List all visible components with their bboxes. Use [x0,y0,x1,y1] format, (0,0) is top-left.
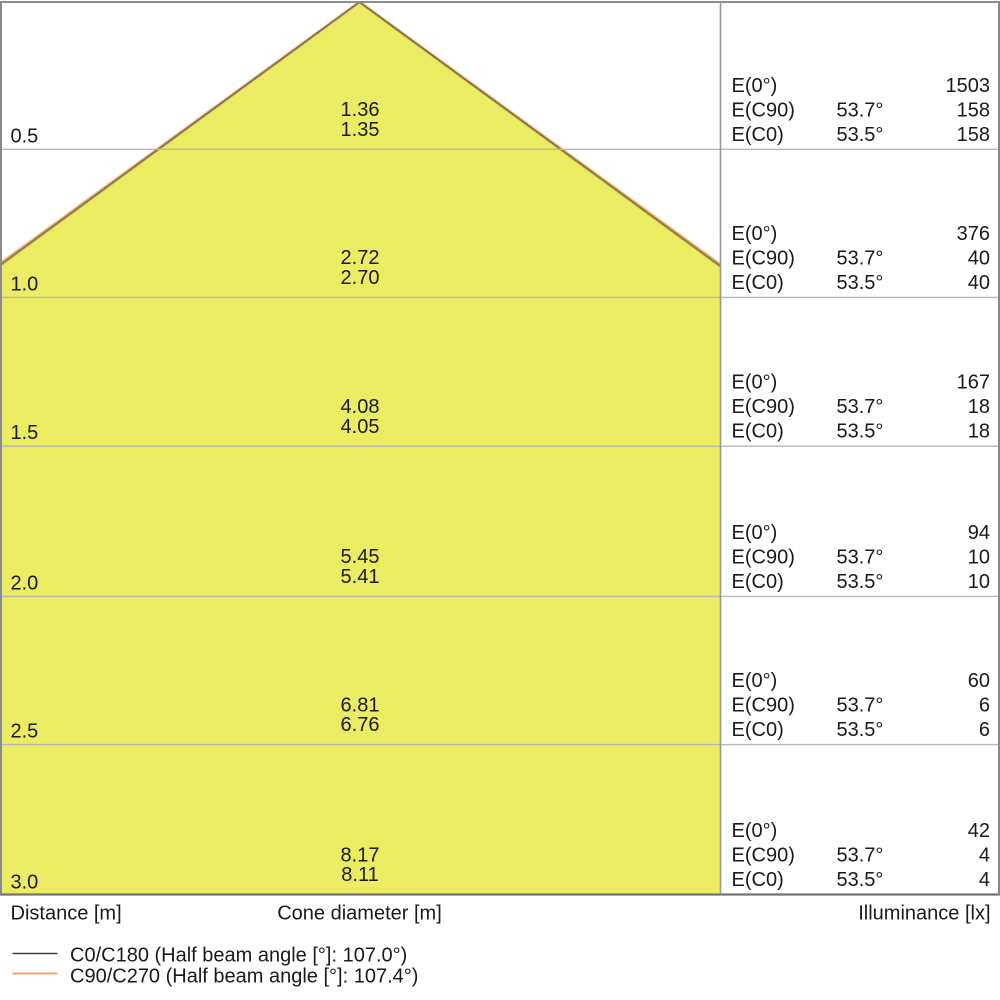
svg-text:60: 60 [968,670,990,692]
svg-text:6.81: 6.81 [341,694,380,716]
svg-text:Cone diameter [m]: Cone diameter [m] [277,903,442,925]
svg-text:E(0°): E(0°) [732,820,778,842]
svg-text:E(0°): E(0°) [732,75,778,97]
svg-text:E(C90): E(C90) [732,99,795,121]
svg-text:158: 158 [957,99,990,121]
svg-text:Distance [m]: Distance [m] [11,903,122,925]
svg-text:6: 6 [979,719,990,741]
svg-text:53.7°: 53.7° [837,695,884,717]
svg-text:5.41: 5.41 [341,566,380,588]
svg-text:E(0°): E(0°) [732,522,778,544]
svg-text:2.5: 2.5 [11,721,39,743]
svg-text:1.0: 1.0 [11,273,39,295]
svg-text:E(C90): E(C90) [732,247,795,269]
svg-text:2.70: 2.70 [341,267,380,289]
svg-text:E(C0): E(C0) [732,124,784,146]
svg-text:53.7°: 53.7° [837,396,884,418]
svg-text:158: 158 [957,124,990,146]
svg-text:8.17: 8.17 [341,844,380,866]
svg-text:2.72: 2.72 [341,247,380,269]
svg-text:53.7°: 53.7° [837,845,884,867]
svg-text:53.5°: 53.5° [837,421,884,443]
svg-text:C90/C270 (Half beam angle [°]:: C90/C270 (Half beam angle [°]: 107.4°) [70,966,418,988]
svg-text:376: 376 [957,223,990,245]
svg-text:6.76: 6.76 [341,714,380,736]
svg-text:53.5°: 53.5° [837,571,884,593]
svg-text:53.5°: 53.5° [837,869,884,891]
svg-text:Illuminance [lx]: Illuminance [lx] [858,903,990,925]
svg-text:E(C90): E(C90) [732,845,795,867]
svg-text:42: 42 [968,820,990,842]
svg-text:53.7°: 53.7° [837,247,884,269]
svg-text:5.45: 5.45 [341,546,380,568]
svg-text:1503: 1503 [946,75,991,97]
svg-text:E(C0): E(C0) [732,272,784,294]
svg-text:E(C0): E(C0) [732,571,784,593]
svg-text:2.0: 2.0 [11,572,39,594]
svg-text:10: 10 [968,546,990,568]
svg-text:53.7°: 53.7° [837,99,884,121]
svg-text:1.35: 1.35 [341,119,380,141]
svg-text:E(C90): E(C90) [732,546,795,568]
svg-text:E(C90): E(C90) [732,396,795,418]
svg-text:4.08: 4.08 [341,396,380,418]
svg-text:E(0°): E(0°) [732,670,778,692]
svg-text:53.5°: 53.5° [837,719,884,741]
svg-text:0.5: 0.5 [11,125,39,147]
svg-text:E(C90): E(C90) [732,695,795,717]
svg-text:6: 6 [979,695,990,717]
svg-text:C0/C180 (Half beam angle [°]:: C0/C180 (Half beam angle [°]: 107.0°) [70,945,407,967]
svg-text:53.5°: 53.5° [837,124,884,146]
svg-text:4.05: 4.05 [341,416,380,438]
svg-text:1.5: 1.5 [11,422,39,444]
svg-text:E(C0): E(C0) [732,719,784,741]
svg-text:E(0°): E(0°) [732,372,778,394]
svg-text:94: 94 [968,522,990,544]
svg-text:E(C0): E(C0) [732,421,784,443]
svg-text:53.5°: 53.5° [837,272,884,294]
svg-text:18: 18 [968,396,990,418]
svg-text:40: 40 [968,272,990,294]
svg-text:40: 40 [968,247,990,269]
svg-text:4: 4 [979,869,990,891]
svg-text:E(0°): E(0°) [732,223,778,245]
svg-text:8.11: 8.11 [341,864,378,886]
svg-text:53.7°: 53.7° [837,546,884,568]
svg-text:4: 4 [979,845,990,867]
svg-text:167: 167 [957,372,990,394]
svg-text:3.0: 3.0 [11,872,39,894]
svg-text:10: 10 [968,571,990,593]
svg-text:18: 18 [968,421,990,443]
svg-text:E(C0): E(C0) [732,869,784,891]
svg-text:1.36: 1.36 [341,99,380,121]
